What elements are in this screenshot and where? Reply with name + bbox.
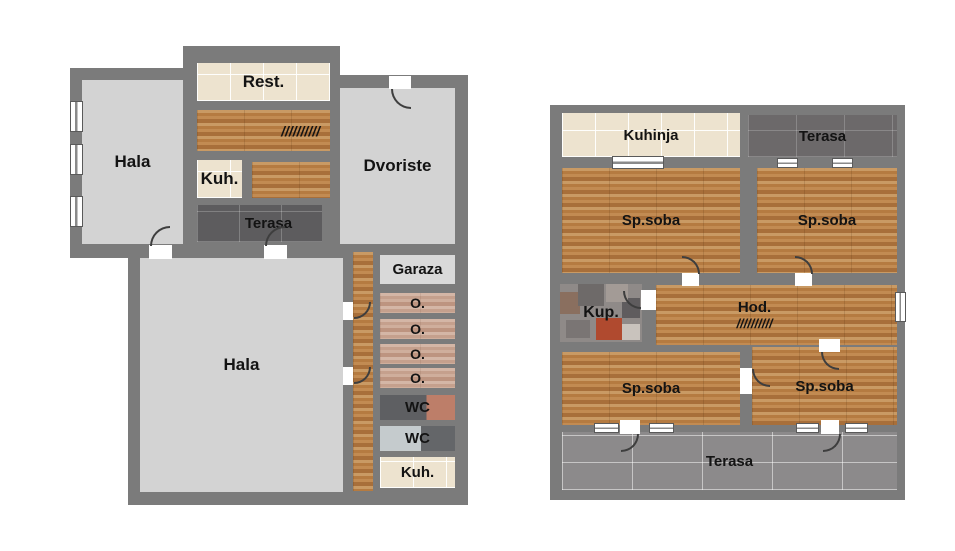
room-label: Sp.soba: [622, 380, 680, 397]
room-label: Rest.: [243, 72, 285, 92]
room-wc2: WC: [380, 426, 455, 451]
stairs-hatch-label: //////////: [281, 123, 320, 139]
room-rest: Rest.: [197, 63, 330, 101]
door-gap: [389, 76, 411, 89]
door-gap: [343, 302, 353, 320]
door-gap: [682, 273, 699, 286]
room-label: O.: [410, 346, 425, 362]
room-sp-soba-bottom-left: Sp.soba: [562, 352, 740, 425]
room-hala-main: Hala: [140, 258, 343, 492]
room-hala-top: Hala: [82, 80, 183, 244]
room-kuh-bottom: Kuh.: [380, 457, 455, 488]
room-o2: O.: [380, 319, 455, 339]
window: [649, 423, 674, 433]
room-sp-soba-top-right: Sp.soba: [757, 168, 897, 273]
left-floor-plan: Hala Rest. ////////// Kuh. Terasa Dvoris…: [0, 0, 480, 551]
room-terasa-bottom: Terasa: [562, 432, 897, 490]
room-label: Kup.: [583, 304, 619, 322]
room-o3: O.: [380, 344, 455, 364]
room-o1: O.: [380, 293, 455, 313]
room-label: Kuh.: [201, 169, 239, 189]
window: [895, 292, 906, 322]
window: [70, 196, 83, 227]
room-dvoriste: Dvoriste: [340, 88, 455, 244]
room-label: WC: [405, 399, 430, 416]
room-kuh-top: Kuh.: [197, 160, 242, 198]
door-gap: [819, 339, 840, 352]
room-garaza: Garaza: [380, 255, 455, 284]
room-terasa-top: Terasa: [748, 115, 897, 157]
stairs-hatch-label: //////////: [736, 316, 816, 331]
room-label: Terasa: [706, 453, 753, 470]
room-label: Kuh.: [401, 464, 434, 481]
window: [832, 158, 853, 168]
room-hod: Hod. //////////: [656, 285, 897, 345]
room-o4: O.: [380, 368, 455, 388]
room-label: Hala: [115, 152, 151, 172]
right-floor-plan: Kuhinja Terasa Sp.soba Sp.soba Kup. Hod.…: [480, 0, 955, 551]
window: [777, 158, 798, 168]
window: [845, 423, 868, 433]
door-gap: [149, 245, 172, 259]
door-gap: [620, 420, 640, 434]
room-label: Hod.: [738, 299, 815, 316]
room-label: Hala: [224, 355, 260, 375]
window: [70, 144, 83, 175]
room-label: Sp.soba: [622, 212, 680, 229]
window: [612, 156, 664, 169]
room-label: Sp.soba: [795, 378, 853, 395]
window: [594, 423, 619, 433]
door-gap: [740, 368, 752, 394]
room-label: Terasa: [799, 128, 846, 145]
room-label: Dvoriste: [363, 156, 431, 176]
door-gap: [264, 245, 287, 259]
door-gap: [641, 290, 656, 310]
room-label: O.: [410, 321, 425, 337]
room-label: Kuhinja: [624, 127, 679, 144]
room-label: O.: [410, 295, 425, 311]
window: [70, 101, 83, 132]
door-gap: [343, 367, 353, 385]
room-label: Garaza: [392, 261, 442, 278]
wood-floor-patch: [252, 162, 330, 198]
room-terasa-left: Terasa: [197, 205, 322, 242]
floor-plan-image: Hala Rest. ////////// Kuh. Terasa Dvoris…: [0, 0, 955, 551]
room-label: WC: [405, 430, 430, 447]
room-sp-soba-top-left: Sp.soba: [562, 168, 740, 273]
room-wc1: WC: [380, 395, 455, 420]
room-label: O.: [410, 370, 425, 386]
room-stair-hall: //////////: [197, 110, 330, 151]
door-gap: [795, 273, 812, 286]
window: [796, 423, 819, 433]
room-kuhinja: Kuhinja: [562, 113, 740, 157]
room-label: Sp.soba: [798, 212, 856, 229]
door-gap: [821, 420, 839, 434]
